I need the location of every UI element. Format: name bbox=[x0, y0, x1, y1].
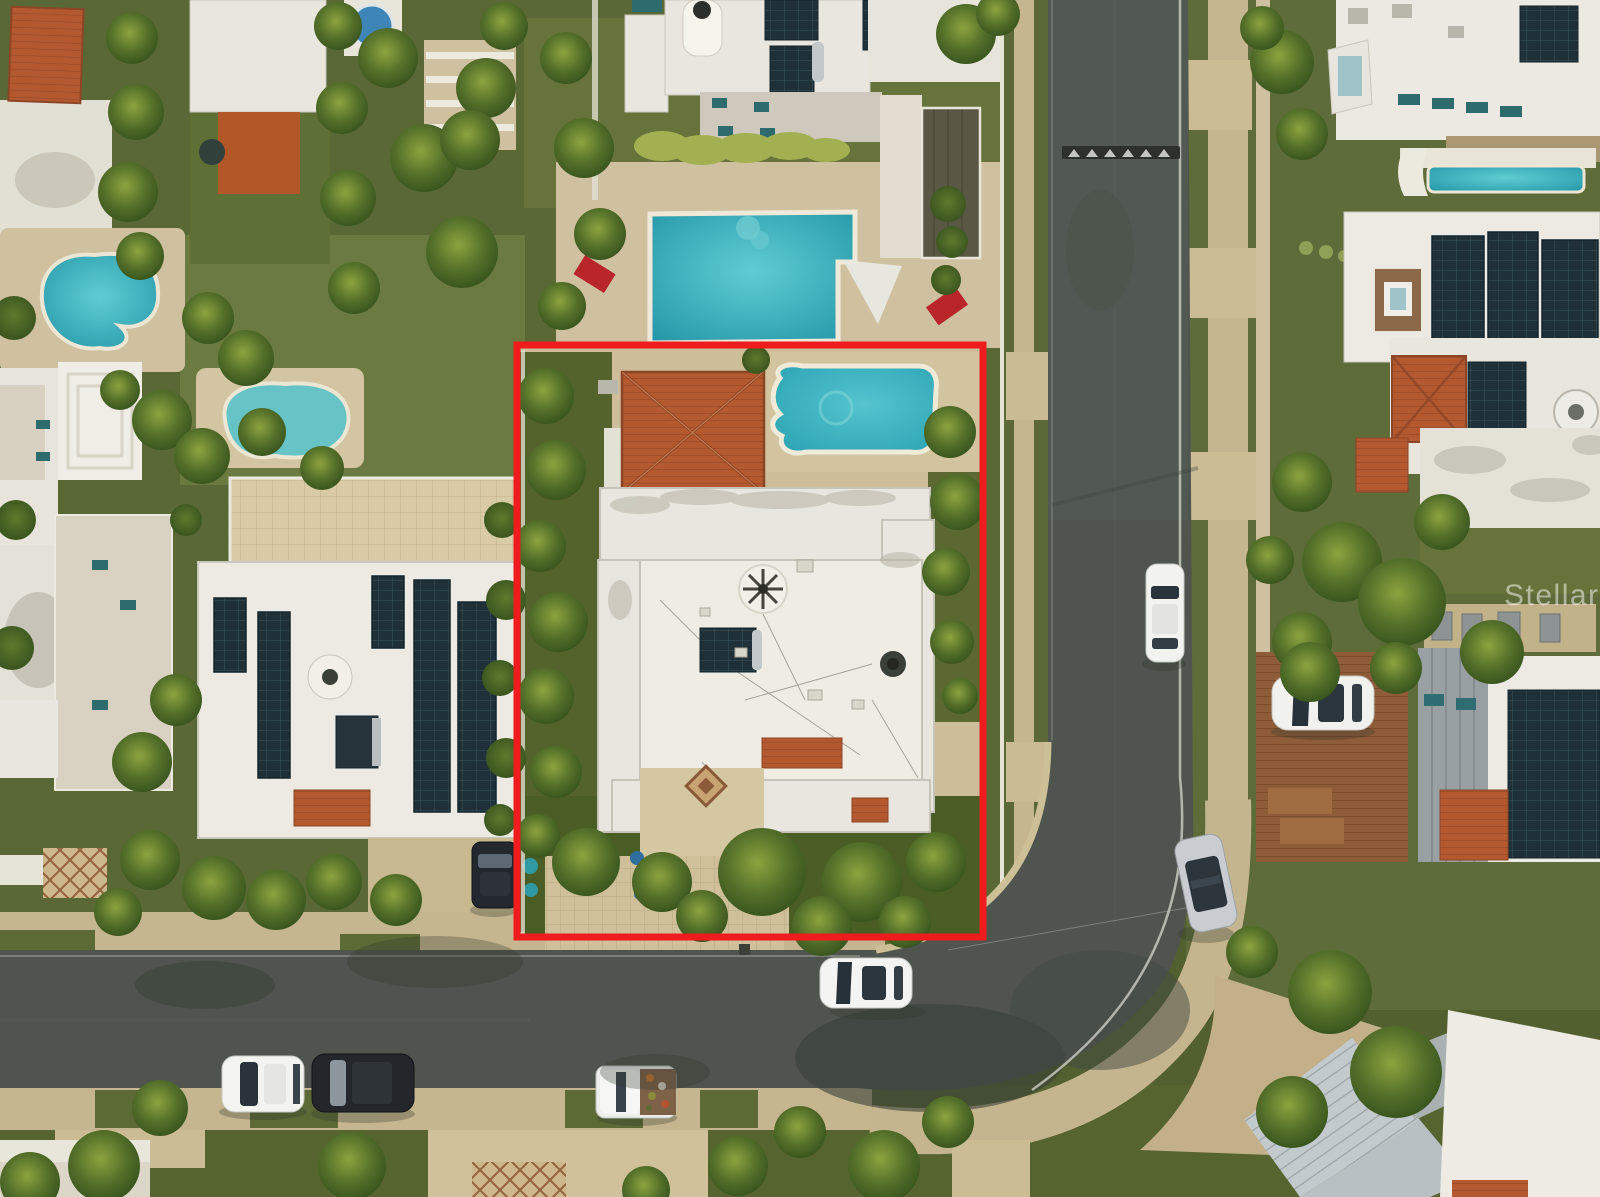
palm-tree bbox=[1256, 1076, 1328, 1148]
palm-tree bbox=[530, 746, 582, 798]
palm-tree bbox=[218, 330, 274, 386]
tree bbox=[1240, 6, 1284, 50]
heater-cylinder bbox=[752, 630, 762, 670]
palm-tree bbox=[792, 896, 852, 956]
palm-tree bbox=[1272, 452, 1332, 512]
tank-cap bbox=[693, 1, 711, 19]
palm-tree bbox=[930, 474, 986, 530]
wet-asphalt-patch bbox=[1010, 950, 1190, 1070]
car-roof bbox=[352, 1062, 392, 1104]
windshield bbox=[478, 854, 512, 868]
roof-band bbox=[880, 95, 922, 258]
palm-tree bbox=[328, 262, 380, 314]
tiled-patio bbox=[43, 848, 107, 898]
palm-tree bbox=[246, 870, 306, 930]
solar-water-heater bbox=[770, 46, 814, 92]
white-flat-roof bbox=[190, 0, 326, 112]
palm-tree bbox=[942, 678, 978, 714]
palm-tree bbox=[98, 162, 158, 222]
rear-window bbox=[1152, 638, 1178, 649]
terracotta-roof-edge bbox=[1452, 1180, 1528, 1197]
beige-roof bbox=[0, 385, 45, 480]
car-roof bbox=[264, 1064, 286, 1104]
palm-tree bbox=[922, 548, 970, 596]
white-car-parked bbox=[1146, 564, 1184, 662]
window-glass bbox=[1390, 288, 1406, 310]
windshield bbox=[1151, 586, 1179, 599]
skylight bbox=[36, 452, 50, 461]
pool-steps bbox=[751, 231, 769, 249]
tree bbox=[1276, 108, 1328, 160]
palm-tree bbox=[100, 370, 140, 410]
palm-tree bbox=[538, 282, 586, 330]
palm-tree bbox=[316, 82, 368, 134]
rooftop-equipment bbox=[598, 380, 618, 394]
palm-tree bbox=[320, 170, 376, 226]
palm-tree bbox=[150, 674, 202, 726]
white-flat-roof bbox=[1440, 1010, 1600, 1197]
palm-tree bbox=[518, 368, 574, 424]
terracotta-roof bbox=[8, 7, 83, 103]
palm-tree bbox=[516, 814, 560, 858]
solar-water-heater bbox=[336, 716, 378, 768]
palm-tree bbox=[132, 1080, 188, 1136]
white-car-driving bbox=[820, 958, 912, 1008]
palm-tree bbox=[574, 208, 626, 260]
skylight bbox=[632, 0, 662, 12]
palm-tree bbox=[370, 874, 422, 926]
skylight bbox=[92, 700, 108, 710]
rear-window bbox=[1352, 684, 1362, 722]
watermark: Stellar MLS bbox=[1504, 579, 1600, 613]
palm-tree bbox=[922, 1096, 974, 1148]
palm-tree bbox=[906, 832, 966, 892]
terracotta-awning bbox=[852, 798, 888, 822]
skylight bbox=[36, 420, 50, 429]
palm-tree bbox=[1460, 620, 1524, 684]
skylight bbox=[92, 560, 108, 570]
palm-tree bbox=[238, 408, 286, 456]
driveway-apron bbox=[1006, 352, 1048, 420]
palm-tree bbox=[106, 12, 158, 64]
palm-tree bbox=[552, 828, 620, 896]
solar-panel-array bbox=[765, 0, 818, 40]
tank-cap bbox=[1568, 404, 1584, 420]
palm-tree bbox=[120, 830, 180, 890]
solar-water-heater bbox=[700, 628, 756, 672]
palm-tree bbox=[456, 58, 516, 118]
sidewalk bbox=[1014, 0, 1034, 948]
palm-tree bbox=[1358, 558, 1446, 646]
sunroof bbox=[862, 966, 886, 1000]
terracotta-awning bbox=[762, 738, 842, 768]
palm-tree bbox=[924, 406, 976, 458]
palm-tree bbox=[94, 888, 142, 936]
palm-tree bbox=[1414, 494, 1470, 550]
patio-umbrella bbox=[199, 139, 225, 165]
palm-tree bbox=[718, 828, 806, 916]
palm-tree bbox=[1350, 1026, 1442, 1118]
palm-tree bbox=[540, 32, 592, 84]
palm-tree bbox=[1280, 642, 1340, 702]
turbine-hub bbox=[758, 584, 768, 594]
tiled-driveway bbox=[472, 1162, 566, 1197]
white-suv-parked bbox=[222, 1056, 304, 1112]
utility-box bbox=[739, 944, 750, 955]
rear-window bbox=[293, 1064, 300, 1104]
palm-tree bbox=[306, 854, 362, 910]
aerial-photo-canvas bbox=[0, 0, 1600, 1197]
palm-tree bbox=[108, 84, 164, 140]
solar-panel-array bbox=[1520, 6, 1578, 62]
palm-tree bbox=[554, 118, 614, 178]
palm-tree bbox=[182, 856, 246, 920]
lap-pool bbox=[1428, 166, 1584, 192]
palm-tree bbox=[528, 592, 588, 652]
orange-canopy bbox=[218, 112, 300, 194]
palm-tree bbox=[708, 1136, 768, 1196]
rooftop-tank-cap bbox=[322, 669, 338, 685]
palm-tree bbox=[1288, 950, 1372, 1034]
driveway-apron bbox=[1186, 60, 1252, 130]
palm-tree bbox=[314, 2, 362, 50]
heater-cylinder bbox=[812, 42, 824, 82]
black-suv-parked bbox=[312, 1054, 414, 1112]
black-suv-driveway bbox=[472, 842, 518, 908]
walkway bbox=[0, 855, 44, 885]
palm-tree bbox=[774, 1106, 826, 1158]
swimming-pool bbox=[773, 365, 937, 453]
heater-cylinder bbox=[372, 718, 381, 766]
palm-tree bbox=[300, 446, 344, 490]
solar-panel-array bbox=[1508, 690, 1600, 858]
terracotta-awning bbox=[294, 790, 370, 826]
driveway-apron bbox=[1186, 248, 1262, 318]
palm-tree bbox=[930, 620, 974, 664]
skylight bbox=[120, 600, 136, 610]
palm-tree bbox=[1370, 642, 1422, 694]
palm-tree bbox=[112, 732, 172, 792]
tiled-patio bbox=[230, 478, 520, 562]
solar-panel-array bbox=[1468, 362, 1526, 436]
car-roof bbox=[1152, 604, 1178, 634]
palm-tree bbox=[518, 668, 574, 724]
palm-tree bbox=[1246, 536, 1294, 584]
palm-tree bbox=[426, 216, 498, 288]
driveway bbox=[952, 1140, 1030, 1197]
aerial-photo: Stellar MLS bbox=[0, 0, 1600, 1197]
roof-stain bbox=[15, 152, 95, 208]
terracotta-roof-slope bbox=[1440, 790, 1508, 860]
palm-tree bbox=[526, 440, 586, 500]
white-flat-roof bbox=[0, 700, 58, 778]
driveway-apron bbox=[1186, 452, 1262, 520]
windshield bbox=[836, 962, 852, 1004]
palm-tree bbox=[116, 232, 164, 280]
bay-window-glass bbox=[1338, 56, 1362, 96]
windshield bbox=[240, 1062, 258, 1106]
palm-tree bbox=[318, 1132, 386, 1197]
palm-tree bbox=[514, 520, 566, 572]
palm-tree bbox=[1226, 926, 1278, 978]
palm-tree bbox=[182, 292, 234, 344]
palm-tree bbox=[174, 428, 230, 484]
white-flat-roof bbox=[625, 15, 668, 112]
windshield bbox=[330, 1060, 346, 1106]
vent-fan-hub bbox=[887, 658, 899, 670]
rear-window bbox=[894, 966, 903, 1000]
palm-tree bbox=[440, 110, 500, 170]
palm-tree bbox=[480, 2, 528, 50]
palm-tree bbox=[358, 28, 418, 88]
terracotta-tower-roof bbox=[1356, 438, 1408, 492]
car-roof bbox=[480, 872, 510, 896]
